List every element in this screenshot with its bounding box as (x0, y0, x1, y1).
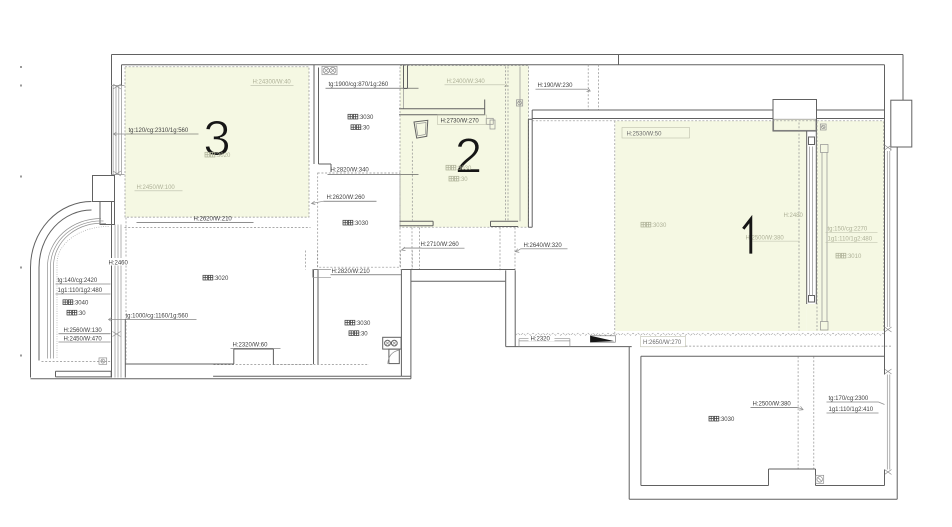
svg-text:tg:1900/cg:870/1g:260: tg:1900/cg:870/1g:260 (329, 82, 389, 88)
svg-text:H:2320/W:60: H:2320/W:60 (233, 343, 269, 349)
svg-text:H:2480: H:2480 (784, 213, 804, 219)
svg-text::30: :30 (361, 126, 370, 132)
svg-text:1g1:110/1g2:480: 1g1:110/1g2:480 (828, 237, 873, 243)
svg-text:H:2500/W:380: H:2500/W:380 (753, 401, 792, 407)
svg-text:tg:1000/cg:1160/1g:560: tg:1000/cg:1160/1g:560 (126, 314, 189, 320)
svg-text:H:2620/W:260: H:2620/W:260 (327, 195, 366, 201)
svg-text:H:2710/W:260: H:2710/W:260 (421, 242, 460, 248)
svg-text:H:2560/W:130: H:2560/W:130 (64, 328, 103, 334)
svg-text:H:2820/W:340: H:2820/W:340 (331, 168, 370, 174)
svg-text:H:2450/W:100: H:2450/W:100 (137, 185, 176, 191)
svg-text::3020: :3020 (213, 276, 229, 282)
svg-text:tg:170/cg:2300: tg:170/cg:2300 (829, 396, 869, 402)
svg-text::3030: :3030 (651, 223, 667, 229)
svg-text::3030: :3030 (358, 115, 374, 121)
svg-text::3030: :3030 (353, 221, 369, 227)
svg-text:tg:140/cg:2420: tg:140/cg:2420 (58, 278, 98, 284)
svg-text:H:2530/W:50: H:2530/W:50 (627, 132, 663, 138)
svg-text:H:2650/W:270: H:2650/W:270 (643, 340, 682, 346)
svg-text::30: :30 (459, 177, 468, 183)
svg-text:H:2640/W:320: H:2640/W:320 (524, 243, 563, 249)
svg-text:1g1:110/1g2:410: 1g1:110/1g2:410 (829, 407, 874, 413)
svg-text::3030: :3030 (719, 417, 735, 423)
svg-text::3030: :3030 (355, 321, 371, 327)
svg-text:H:2730/W:270: H:2730/W:270 (441, 118, 480, 124)
svg-text:tg:150/cg:2270: tg:150/cg:2270 (828, 227, 868, 233)
svg-text:1g1:110/1g2:480: 1g1:110/1g2:480 (58, 288, 103, 294)
svg-text:H:2820/W:210: H:2820/W:210 (332, 269, 371, 275)
svg-text:H:24300/W:40: H:24300/W:40 (253, 80, 292, 86)
svg-text:H:2620/W:210: H:2620/W:210 (194, 217, 233, 223)
svg-text::30: :30 (77, 311, 86, 317)
svg-text::30: :30 (359, 332, 368, 338)
svg-text:H:190/W:230: H:190/W:230 (538, 83, 574, 89)
svg-text:H:2460: H:2460 (109, 261, 129, 267)
svg-text::3040: :3040 (73, 301, 89, 307)
svg-text:2: 2 (455, 130, 482, 184)
svg-text:H:2450/W:470: H:2450/W:470 (64, 336, 103, 342)
svg-text::3020: :3020 (215, 153, 231, 159)
svg-text:tg:120/cg:2310/1g:560: tg:120/cg:2310/1g:560 (129, 128, 189, 134)
svg-text:H:2400/W:340: H:2400/W:340 (447, 79, 486, 85)
svg-text::3030: :3030 (456, 166, 472, 172)
svg-text:H:2320: H:2320 (531, 336, 551, 342)
svg-text::3010: :3010 (846, 254, 862, 260)
